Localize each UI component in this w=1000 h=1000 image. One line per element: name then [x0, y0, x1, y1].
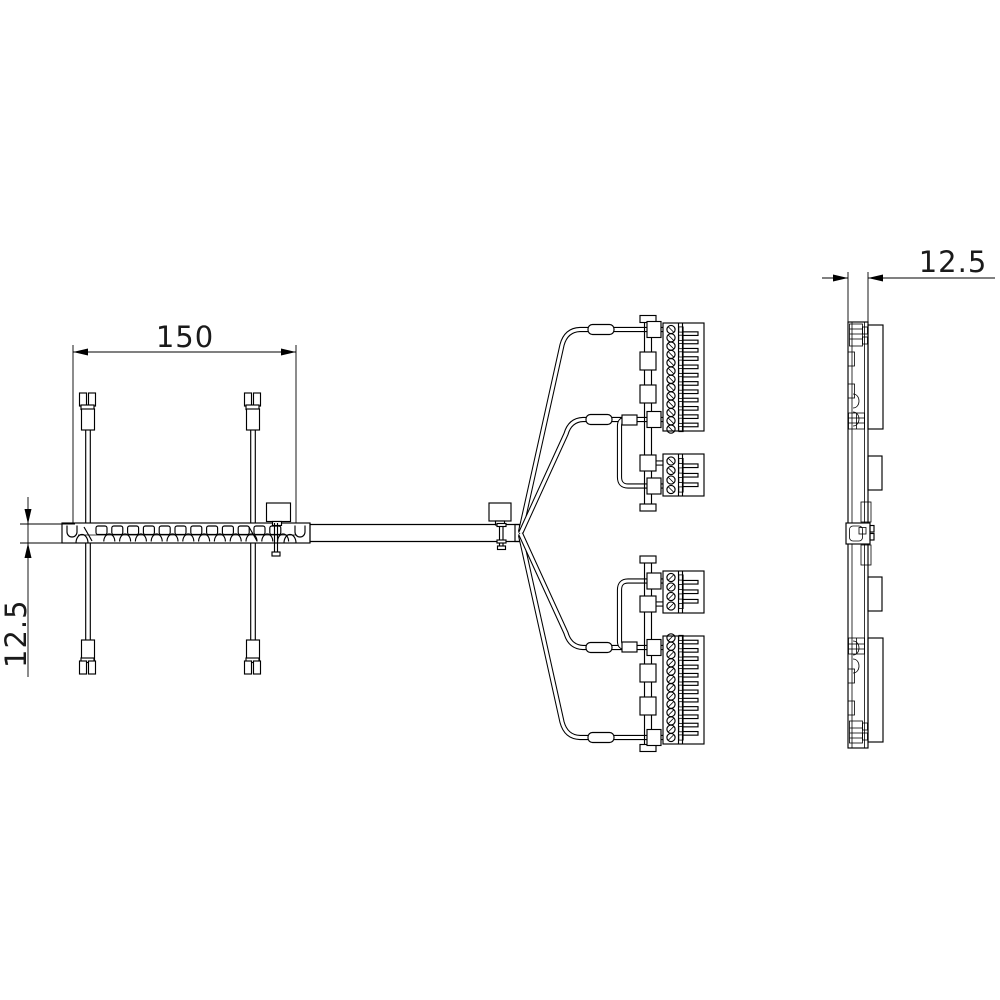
wire-bulge: [853, 394, 859, 408]
arrowhead-right: [868, 275, 883, 282]
rail-section-tab: [870, 534, 874, 541]
clamp-profile: [848, 384, 855, 398]
wire-bulge: [853, 412, 859, 426]
bar-clamp: [640, 352, 656, 370]
rail-slot: [159, 526, 170, 535]
rail-slot: [270, 526, 281, 535]
wire-ferrule: [588, 325, 614, 335]
contact-tab: [863, 337, 868, 344]
end-clip: [295, 526, 305, 538]
contact-tab: [863, 733, 868, 740]
junction-fitting: [622, 415, 637, 425]
clamp-profile: [848, 669, 855, 683]
cable-top-pin: [80, 393, 87, 406]
feed-pin-foot: [272, 552, 280, 556]
jumper-wire: [620, 581, 664, 648]
connector-group: [521, 534, 705, 752]
jumper-wire: [620, 420, 664, 487]
dimension-side-depth: 12.5: [822, 245, 995, 326]
cable-top-pin: [245, 393, 252, 406]
cable-tube: [310, 503, 520, 550]
rail-slot: [238, 526, 249, 535]
arrowhead-right: [281, 349, 296, 356]
arrowhead-left: [833, 275, 848, 282]
dimension-text-12-5-side: 12.5: [919, 245, 988, 279]
front-view: 150 12.5: [0, 316, 704, 752]
terminal-block-large: [663, 634, 704, 744]
end-dome: [76, 535, 88, 544]
bar-clamp: [640, 596, 656, 612]
rail-slot: [112, 526, 123, 535]
terminal-block-large-side: [868, 325, 883, 429]
junction-fitting: [622, 642, 637, 652]
wire-ferrule: [588, 733, 614, 743]
bar-clamp: [640, 697, 656, 715]
rail-end-cap: [284, 526, 305, 544]
terminal-block-large: [663, 323, 704, 433]
rail-slot: [143, 526, 154, 535]
terminal-block-small-side: [868, 577, 882, 611]
technical-drawing: 150 12.5: [0, 0, 1000, 1000]
terminal-block-small: [663, 454, 704, 496]
tube-pin-collar: [497, 540, 506, 543]
wire-bulge: [853, 659, 859, 673]
rail-cross-section: [846, 502, 874, 565]
wire-bulge: [853, 641, 859, 655]
clamp-profile: [848, 352, 855, 366]
feed-box: [267, 503, 291, 522]
tube-box: [489, 503, 511, 521]
contact-block: [850, 324, 863, 346]
arrowhead-bottom: [25, 543, 32, 558]
side-view: 12.5: [822, 245, 995, 748]
rail-section-tab: [870, 526, 874, 533]
rail-slot: [222, 526, 233, 535]
side-detail-upper: [848, 324, 883, 490]
side-fitting: [861, 502, 871, 522]
side-detail-lower: [848, 577, 883, 743]
end-clip: [67, 526, 77, 538]
terminal-block-small: [663, 571, 704, 613]
rail-slot: [175, 526, 186, 535]
wire-clamp: [647, 640, 661, 656]
arrowhead-left: [73, 349, 88, 356]
jumper-wire-core: [620, 581, 664, 648]
dimension-text-150: 150: [156, 320, 214, 354]
cable-bottom-pin: [254, 661, 261, 674]
cable-top-sleeve: [82, 409, 95, 430]
cable-top-pin: [254, 393, 261, 406]
tube-pin-foot: [498, 546, 506, 550]
dimension-front-width: 150: [73, 320, 296, 523]
tube-pin-collar: [497, 524, 506, 527]
arrowhead-top: [25, 509, 32, 524]
clamp-profile: [848, 701, 855, 715]
connector-group: [521, 316, 705, 534]
cable-top-sleeve: [247, 409, 260, 430]
cable-jog: [84, 527, 92, 541]
rail-slot: [254, 526, 265, 535]
dimension-text-12-5-front: 12.5: [0, 599, 33, 668]
contact-block: [850, 721, 863, 743]
cable-top-pin: [89, 393, 96, 406]
cable-bottom-pin: [89, 661, 96, 674]
bar-end-flange: [640, 556, 656, 563]
rail-modules: [96, 526, 289, 542]
terminal-block-small-side: [868, 456, 882, 490]
wire-clamp: [647, 478, 661, 494]
rail-slot: [191, 526, 202, 535]
wire-clamp: [647, 573, 661, 589]
terminal-block-large-side: [868, 638, 883, 742]
wire-clamp: [647, 730, 661, 746]
side-fitting: [861, 545, 871, 565]
cable-bottom-pin: [80, 661, 87, 674]
drop-cable: [80, 393, 96, 674]
bar-clamp: [640, 385, 656, 403]
contact-tab: [863, 327, 868, 334]
bar-end-flange: [640, 504, 656, 511]
wire-clamp: [647, 412, 661, 428]
end-dome: [284, 535, 296, 544]
dimension-front-height: 12.5: [0, 497, 75, 677]
bar-clamp: [640, 664, 656, 682]
wire-ferrule: [586, 415, 612, 425]
cable-bottom-pin: [245, 661, 252, 674]
drop-cable: [245, 393, 261, 674]
bar-clamp: [640, 455, 656, 471]
ferrule-bundle-side: [849, 638, 865, 654]
jumper-wire-core: [620, 420, 664, 487]
wire-clamp: [647, 322, 661, 338]
contact-tab: [863, 723, 868, 730]
wire-ferrule: [586, 643, 612, 653]
rail-slot: [96, 526, 107, 535]
ferrule-bundle-side: [849, 413, 865, 429]
rail-slot: [128, 526, 139, 535]
rail-slot: [207, 526, 218, 535]
